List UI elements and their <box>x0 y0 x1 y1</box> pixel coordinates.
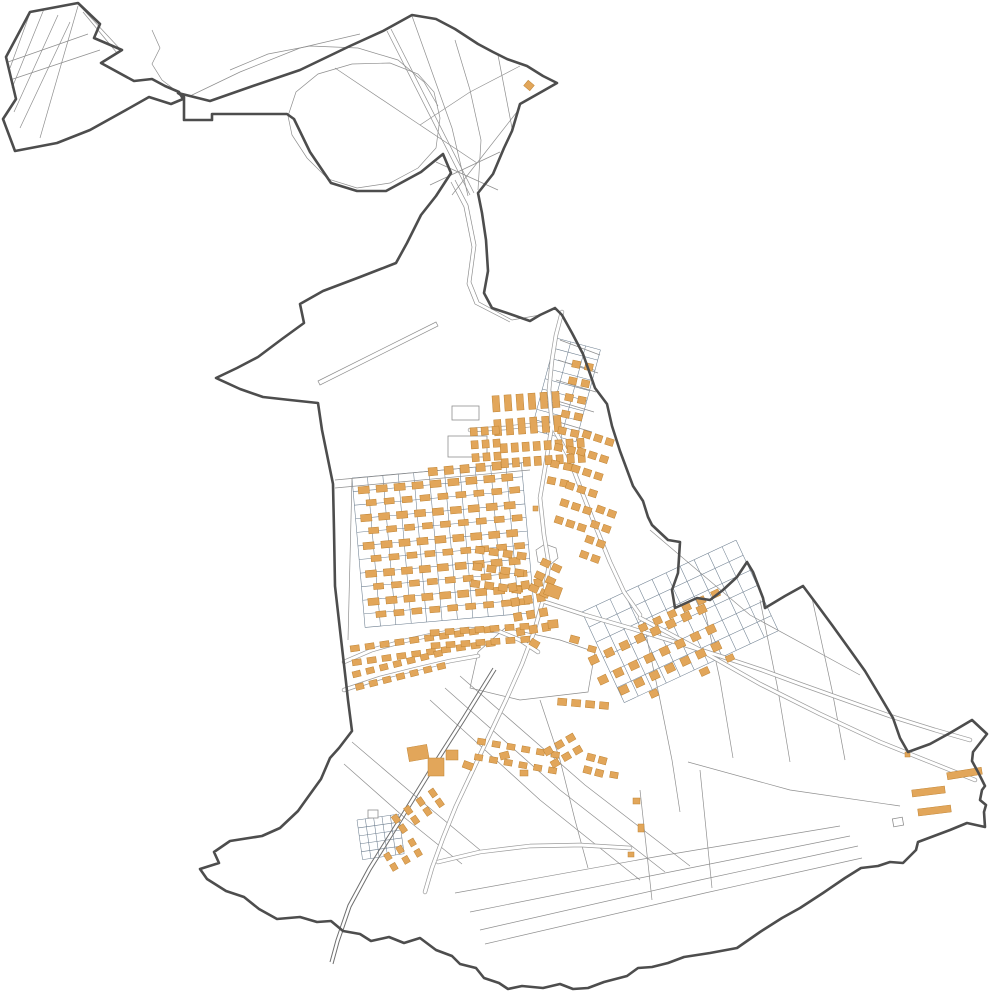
railway-layer <box>330 668 496 964</box>
map-page <box>0 0 1000 1000</box>
parcel-line-layer <box>8 6 900 944</box>
boundary-layer <box>3 3 987 989</box>
map-canvas <box>0 0 1000 1000</box>
